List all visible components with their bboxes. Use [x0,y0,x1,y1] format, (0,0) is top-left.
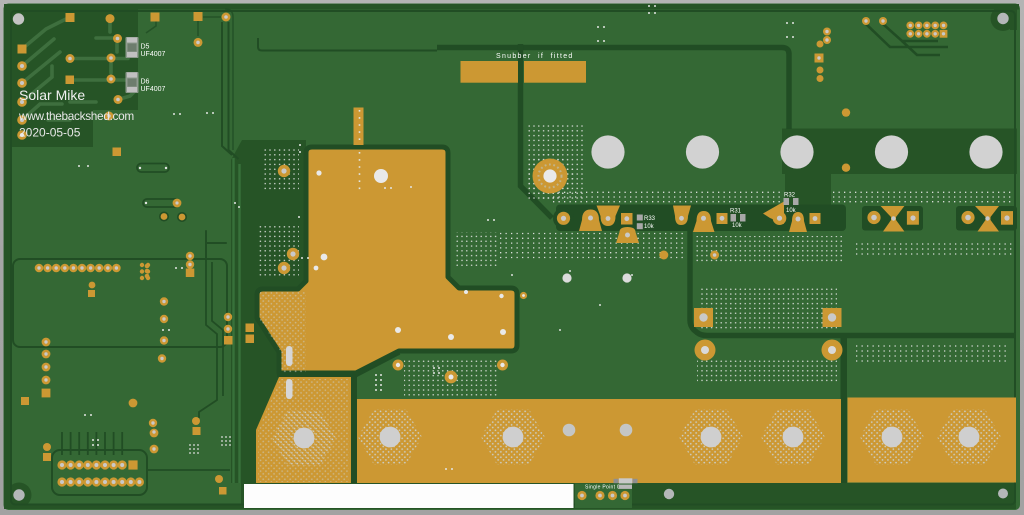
svg-text:UF4007: UF4007 [141,51,166,58]
svg-text:Snubber if fitted: Snubber if fitted [496,53,574,60]
svg-text:www.thebackshed.com: www.thebackshed.com [18,109,134,123]
svg-text:Solar Mike: Solar Mike [19,87,85,103]
svg-text:R31: R31 [730,209,742,215]
svg-text:2020-05-05: 2020-05-05 [19,126,81,140]
svg-text:R32: R32 [784,193,796,199]
svg-text:UF4007: UF4007 [141,86,166,93]
svg-text:Single Point 0v: Single Point 0v [585,485,623,491]
svg-text:10k: 10k [732,223,743,229]
svg-text:D5: D5 [141,44,150,51]
svg-text:10k: 10k [644,224,655,230]
svg-text:R33: R33 [644,216,656,222]
svg-text:D6: D6 [141,79,150,86]
